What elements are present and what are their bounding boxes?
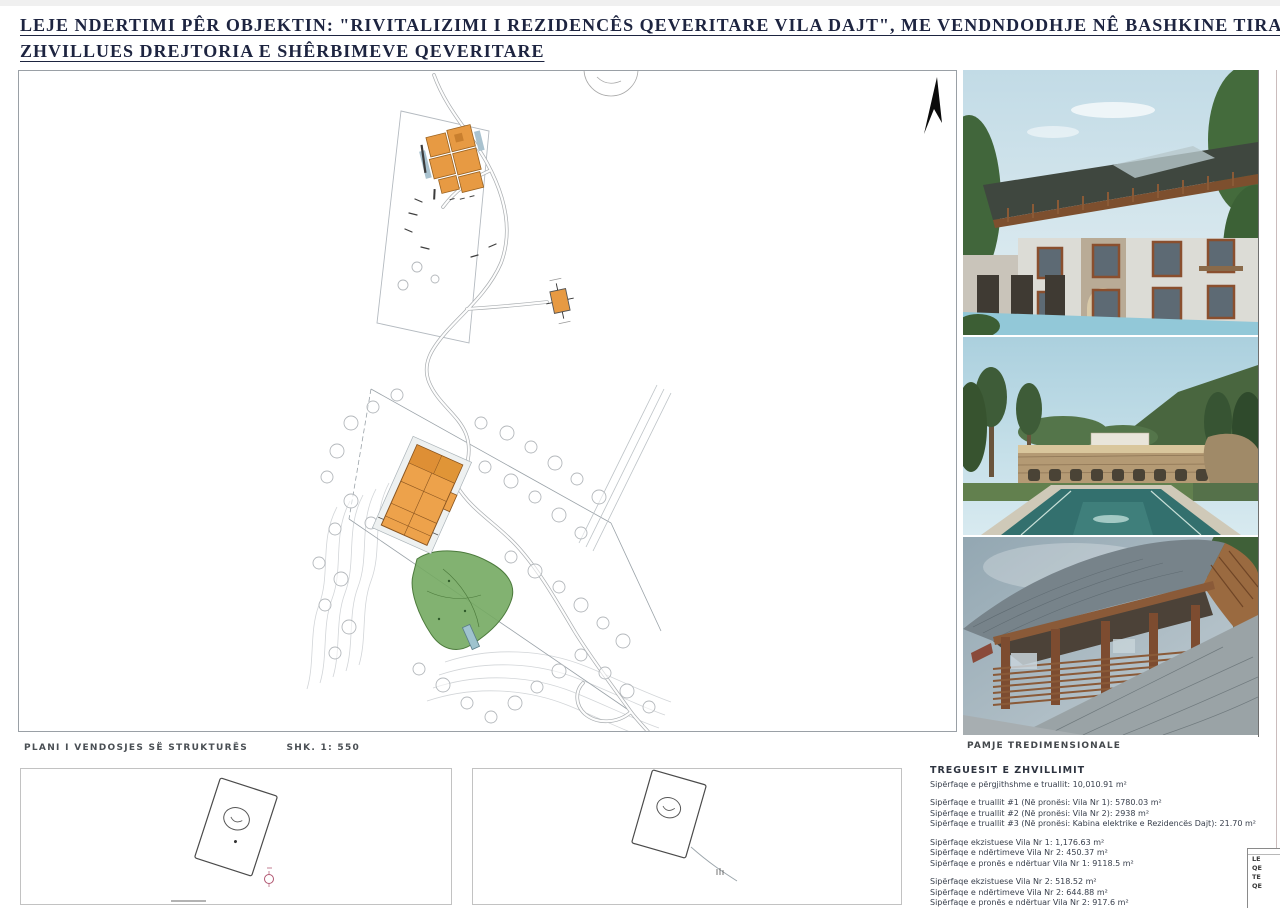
parcel-boundary-lines [349, 111, 671, 709]
indicators-heading: TREGUESIT E ZHVILLIMIT [930, 766, 1262, 777]
revision-cloud-inner [597, 77, 621, 83]
side-legend-table: LE QE TE QE [1247, 848, 1280, 908]
photo-panel [963, 70, 1259, 737]
plan-caption-text: PLANI I VENDOSJES SË STRUKTURËS [24, 743, 248, 753]
indicator-vila2-property: Sipërfaqe e pronës e ndërtuar Vila Nr 2:… [930, 898, 1262, 908]
photo-villa-exterior [963, 70, 1258, 335]
indicator-parcel-1: Sipërfaqe e truallit #1 (Në pronësi: Vil… [930, 798, 1262, 809]
plan-caption: PLANI I VENDOSJES SË STRUKTURËS SHK. 1: … [24, 743, 360, 753]
side-table-row-4: QE [1248, 882, 1280, 891]
indicator-parcel-2: Sipërfaqe e truallit #2 (Në pronësi: Vil… [930, 809, 1262, 820]
side-table-row-3: TE [1248, 873, 1280, 882]
north-arrow-icon [924, 77, 942, 134]
permit-sheet: LEJE NDERTIMI PÊR OBJEKTIN: "RIVITALIZIM… [0, 0, 1280, 908]
plan-scale-label: SHK. 1: 550 [287, 743, 361, 753]
survey-point-symbol [265, 868, 274, 887]
sheet-edge-line [1276, 70, 1277, 908]
photo-panel-caption: PAMJE TREDIMENSIONALE [967, 741, 1121, 751]
indicator-vila1-existing: Sipërfaqe ekzistuese Vila Nr 1: 1,176.63… [930, 838, 1262, 849]
indicator-vila1-property: Sipërfaqe e pronës e ndërtuar Vila Nr 1:… [930, 859, 1262, 870]
indicator-vila1-built: Sipërfaqe e ndërtimeve Vila Nr 2: 450.37… [930, 848, 1262, 859]
detail-box-structure-1 [20, 768, 452, 905]
detail-box-a-svg [21, 769, 451, 904]
title-line-1: LEJE NDERTIMI PÊR OBJEKTIN: "RIVITALIZIM… [20, 12, 1280, 38]
page-title: LEJE NDERTIMI PÊR OBJEKTIN: "RIVITALIZIM… [20, 12, 1270, 64]
detail-box-structure-2 [472, 768, 902, 905]
sketch-marks [405, 199, 496, 257]
detail-box-b-svg [473, 769, 901, 904]
side-table-row-2: QE [1248, 864, 1280, 873]
site-plan-drawing [18, 70, 957, 732]
indicator-parcel-3: Sipërfaqe e truallit #3 (Në pronësi: Kab… [930, 819, 1262, 830]
vila-1-footprint [372, 436, 471, 553]
photo-pool-terrace [963, 337, 1258, 535]
site-plan-svg [19, 71, 956, 731]
development-indicators: TREGUESIT E ZHVILLIMIT Sipërfaqe e përgj… [930, 766, 1262, 908]
indicator-vila2-existing: Sipërfaqe ekzistuese Vila Nr 2: 518.52 m… [930, 877, 1262, 888]
title-line-2: ZHVILLUES DREJTORIA E SHÊRBIMEVE QEVERIT… [20, 38, 544, 64]
green-area [412, 551, 513, 650]
indicator-vila2-built: Sipërfaqe e ndërtimeve Vila Nr 2: 644.88… [930, 888, 1262, 899]
indicator-total: Sipërfaqe e përgjithshme e truallit: 10,… [930, 780, 1262, 791]
side-table-row-1: LE [1248, 855, 1280, 864]
photo-wooden-pavilion [963, 537, 1258, 735]
scan-artifact [0, 0, 1280, 6]
tree-symbols [313, 262, 655, 723]
